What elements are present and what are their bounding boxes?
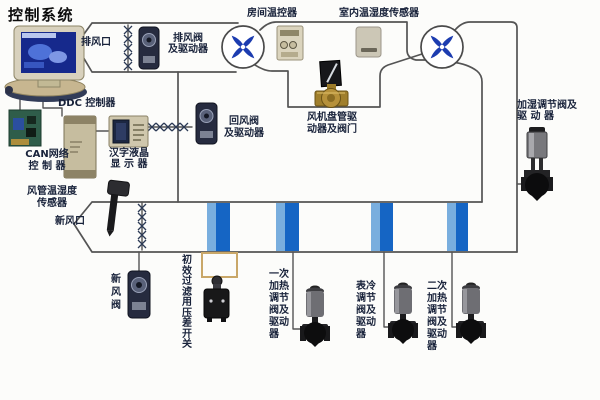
label-cooling-valve: 表冷调节阀及驱动器 (356, 281, 378, 341)
pipe-4 (447, 203, 468, 251)
label-duct-sensor: 风管温湿度 传感器 (25, 186, 79, 210)
exhaust-fan-icon (222, 26, 264, 68)
return-air-valve-actuator (196, 103, 217, 144)
chilled-hot-water-pipes (207, 203, 468, 251)
label-fresh-air-vent: 新风口 (55, 216, 85, 227)
humidifier-valve-device (521, 127, 553, 201)
label-fresh-air-valve: 新风阀 (111, 273, 123, 312)
can-controller-board (9, 110, 41, 146)
label-can-controller: CAN网络 控 制 器 (22, 149, 72, 173)
lcd-display-device (109, 116, 148, 147)
label-indoor-sensor: 室内温湿度传感器 (339, 8, 419, 19)
label-exhaust-valve: 排风阀 及驱动器 (164, 33, 212, 55)
fresh-air-valve-actuator (128, 271, 150, 318)
duct-sensor-probe (102, 180, 130, 238)
cooling-valve-device (388, 283, 418, 345)
filter-section-box (202, 253, 237, 277)
label-exhaust-vent: 排风口 (81, 37, 111, 48)
label-lcd-display: 汉字液晶 显 示 器 (106, 148, 152, 170)
diagram-canvas (0, 0, 600, 400)
secondary-heating-valve-device (456, 283, 486, 345)
label-room-thermostat: 房间温控器 (247, 8, 297, 19)
pipe-1 (207, 203, 230, 251)
label-filter-pressure-switch: 初效过滤用压差开关 (182, 256, 194, 351)
page-title: 控制系统 (8, 4, 74, 25)
supply-fan-icon (421, 26, 463, 68)
pressure-switch-device (204, 276, 229, 322)
ahu-right-edge (452, 62, 482, 202)
label-secondary-heating-valve: 二次加热调节阀及驱动器 (427, 281, 449, 353)
label-humidifier-valve: 加湿调节阀及 驱 动 器 (517, 100, 583, 122)
label-return-air-valve: 回风阀 及驱动器 (221, 116, 267, 140)
fan-coil-valve-device (315, 60, 348, 107)
label-primary-heating-valve: 一次加热调节阀及驱动器 (269, 269, 291, 341)
primary-heating-valve-device (300, 286, 330, 348)
label-fan-coil-valve: 风机盘管驱 动器及阀门 (303, 112, 361, 136)
indoor-sensor-device (356, 27, 381, 57)
computer-workstation (5, 26, 87, 102)
pipe-2 (276, 203, 299, 251)
hvac-control-system-diagram: 控制系统 排风口 排风阀 及驱动器 房间温控器 室内温湿度传感器 DDC 控制器… (0, 0, 600, 400)
room-thermostat-device (277, 26, 303, 60)
pipe-3 (371, 203, 393, 251)
label-ddc-controller: DDC 控制器 (58, 98, 115, 109)
exhaust-valve-actuator (139, 27, 159, 69)
